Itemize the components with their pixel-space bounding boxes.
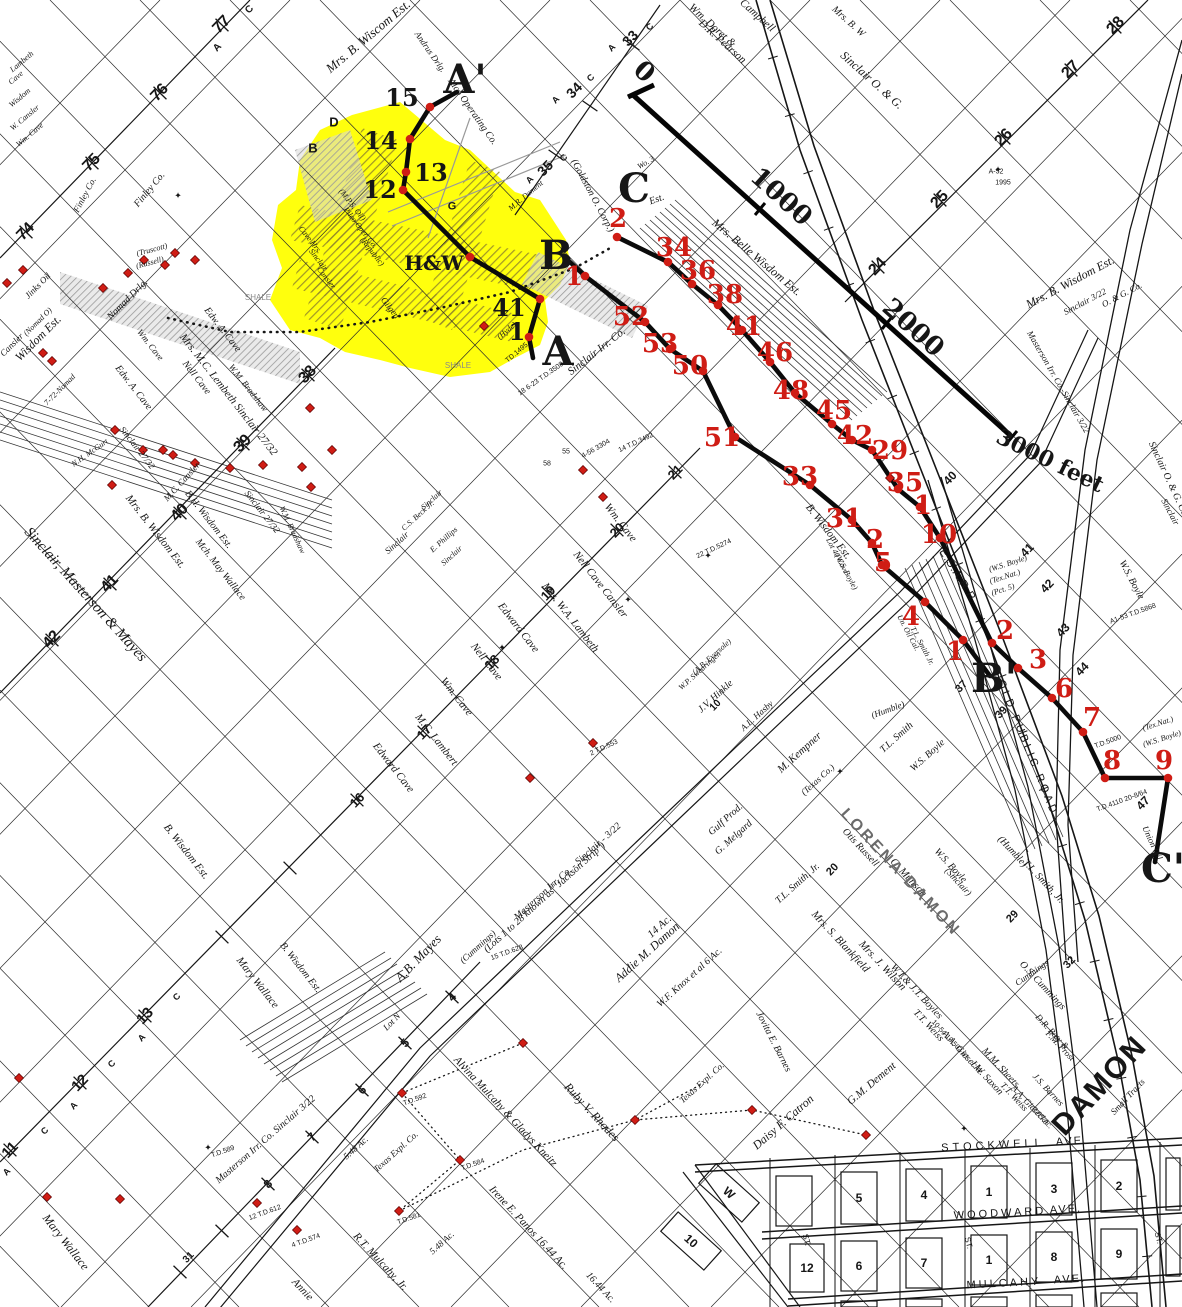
well-point bbox=[613, 233, 622, 242]
city-block: 10 bbox=[661, 1212, 721, 1270]
well-marker bbox=[42, 1192, 51, 1201]
well-point bbox=[466, 253, 475, 262]
well-point bbox=[1101, 774, 1110, 783]
well-point bbox=[766, 358, 775, 367]
well-point bbox=[666, 345, 675, 354]
street-grid: 541326718912W10 bbox=[661, 1138, 1182, 1307]
irrigation-canal bbox=[205, 330, 1098, 1307]
well-point bbox=[406, 135, 415, 144]
city-block: 5 bbox=[841, 1172, 877, 1224]
block-number: 3 bbox=[1051, 1182, 1058, 1196]
well-marker bbox=[630, 1115, 639, 1124]
well-marker bbox=[38, 348, 47, 357]
well-marker bbox=[578, 465, 587, 474]
well-marker bbox=[18, 265, 27, 274]
well-point bbox=[399, 186, 408, 195]
well-point bbox=[848, 516, 857, 525]
well-point bbox=[936, 534, 945, 543]
city-block bbox=[1166, 1158, 1180, 1210]
well-point bbox=[806, 481, 815, 490]
well-marker bbox=[190, 255, 199, 264]
well-point bbox=[738, 326, 747, 335]
well-point bbox=[878, 561, 887, 570]
well-marker bbox=[861, 1130, 870, 1139]
well-marker bbox=[297, 462, 306, 471]
block-number: 1 bbox=[986, 1185, 993, 1199]
well-marker bbox=[2, 278, 11, 287]
well-point bbox=[1014, 664, 1023, 673]
block-number: W bbox=[720, 1184, 738, 1202]
well-marker bbox=[190, 458, 199, 467]
well-point bbox=[1048, 694, 1057, 703]
well-marker bbox=[747, 1105, 756, 1114]
city-block bbox=[1036, 1295, 1072, 1307]
city-block bbox=[1166, 1226, 1180, 1276]
well-marker bbox=[588, 738, 597, 747]
well-marker bbox=[170, 248, 179, 257]
well-point bbox=[581, 272, 590, 281]
plat-map: 541326718912W10 A'ABB'CC'H&W151413124111… bbox=[0, 0, 1182, 1307]
well-point bbox=[641, 318, 650, 327]
block-number: 12 bbox=[800, 1261, 814, 1275]
block-number: 2 bbox=[1116, 1179, 1123, 1193]
dotted-lines bbox=[168, 247, 866, 1211]
well-marker bbox=[258, 460, 267, 469]
well-marker bbox=[158, 445, 167, 454]
block-number: 5 bbox=[856, 1191, 863, 1205]
well-point bbox=[894, 485, 903, 494]
block-number: 1 bbox=[986, 1253, 993, 1267]
city-block: 1 bbox=[971, 1166, 1007, 1218]
well-marker bbox=[292, 1225, 301, 1234]
city-block: 12 bbox=[790, 1244, 824, 1292]
well-point bbox=[699, 367, 708, 376]
geology-overlay bbox=[60, 102, 648, 384]
well-marker bbox=[225, 463, 234, 472]
city-block: 7 bbox=[906, 1238, 942, 1288]
well-point bbox=[988, 639, 997, 648]
well-point bbox=[791, 389, 800, 398]
well-point bbox=[714, 301, 723, 310]
well-point bbox=[828, 420, 837, 429]
well-marker bbox=[525, 773, 534, 782]
well-point bbox=[916, 503, 925, 512]
well-point bbox=[525, 333, 534, 342]
well-point bbox=[426, 103, 435, 112]
well-point bbox=[1164, 774, 1173, 783]
well-marker bbox=[139, 255, 148, 264]
well-point bbox=[868, 446, 877, 455]
well-marker bbox=[115, 1194, 124, 1203]
well-point bbox=[664, 258, 673, 267]
block-number: 8 bbox=[1051, 1250, 1058, 1264]
well-point bbox=[402, 168, 411, 177]
map-artwork: 541326718912W10 bbox=[0, 0, 1182, 1307]
block-number: 10 bbox=[681, 1231, 701, 1251]
well-marker bbox=[455, 1155, 464, 1164]
well-point bbox=[868, 539, 877, 548]
well-marker bbox=[327, 445, 336, 454]
city-block: 4 bbox=[906, 1169, 942, 1221]
well-marker bbox=[123, 268, 132, 277]
well-marker bbox=[305, 403, 314, 412]
city-block: 3 bbox=[1036, 1163, 1072, 1215]
city-block bbox=[906, 1299, 942, 1307]
block-number: 7 bbox=[921, 1256, 928, 1270]
block-number: 4 bbox=[921, 1188, 928, 1202]
well-point bbox=[921, 598, 930, 607]
well-marker bbox=[168, 450, 177, 459]
city-block bbox=[776, 1176, 812, 1226]
well-point bbox=[848, 436, 857, 445]
well-marker bbox=[47, 356, 56, 365]
well-marker bbox=[394, 1206, 403, 1215]
block-number: 9 bbox=[1116, 1247, 1123, 1261]
city-block bbox=[1101, 1293, 1137, 1307]
block-number: 6 bbox=[856, 1259, 863, 1273]
city-block: W bbox=[699, 1164, 759, 1222]
well-marker bbox=[160, 260, 169, 269]
well-point bbox=[731, 433, 740, 442]
well-marker bbox=[598, 492, 607, 501]
well-point bbox=[536, 295, 545, 304]
well-point bbox=[959, 636, 968, 645]
well-marker bbox=[110, 425, 119, 434]
well-marker bbox=[14, 1073, 23, 1082]
railroad bbox=[756, 0, 1166, 1307]
well-point bbox=[1079, 728, 1088, 737]
well-marker bbox=[252, 1198, 261, 1207]
city-block: 8 bbox=[1036, 1232, 1072, 1282]
city-block: 9 bbox=[1101, 1229, 1137, 1279]
well-marker bbox=[107, 480, 116, 489]
well-marker bbox=[306, 482, 315, 491]
city-block: 1 bbox=[971, 1235, 1007, 1285]
well-point bbox=[688, 280, 697, 289]
